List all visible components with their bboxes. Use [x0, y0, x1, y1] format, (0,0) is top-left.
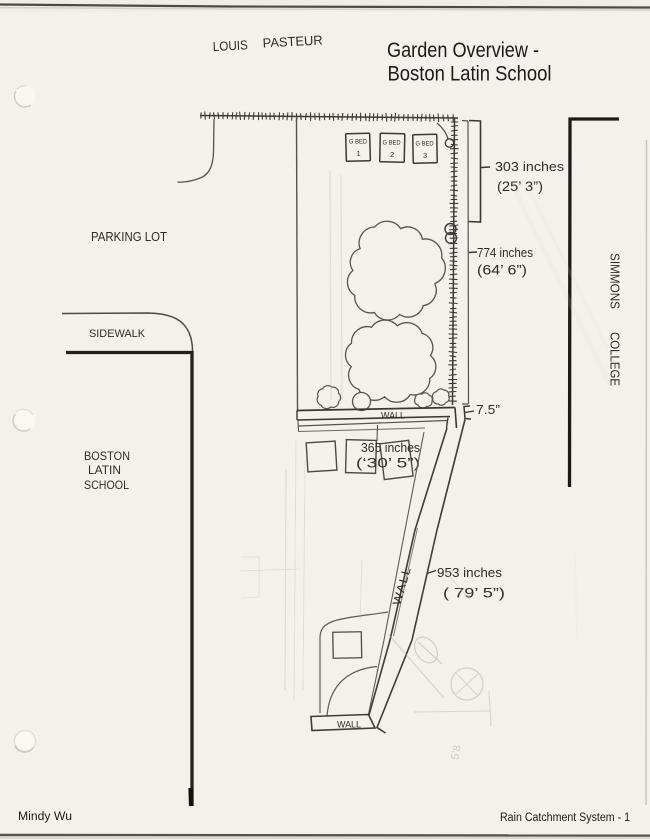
svg-text:SCHOOL: SCHOOL	[84, 478, 129, 492]
svg-text:G BED: G BED	[416, 142, 435, 148]
svg-text:Garden Overview -: Garden Overview -	[387, 39, 539, 62]
svg-text:774 inches: 774 inches	[477, 246, 533, 260]
svg-text:WALL: WALL	[337, 720, 361, 731]
svg-text:2: 2	[390, 150, 394, 159]
svg-text:Boston Latin School: Boston Latin School	[388, 63, 552, 86]
svg-text:303 inches: 303 inches	[495, 159, 565, 174]
svg-text:WALL: WALL	[381, 411, 405, 422]
svg-text:SIMMONS: SIMMONS	[608, 253, 622, 309]
svg-text:SIDEWALK: SIDEWALK	[89, 328, 146, 340]
svg-text:7.5”: 7.5”	[476, 402, 500, 417]
svg-text:( 79’ 5”): ( 79’ 5”)	[443, 586, 505, 601]
svg-text:BOSTON: BOSTON	[84, 449, 130, 463]
svg-text:Mindy Wu: Mindy Wu	[18, 811, 72, 823]
svg-text:LOUIS: LOUIS	[212, 37, 248, 54]
svg-text:PARKING LOT: PARKING LOT	[91, 229, 167, 244]
svg-text:5’8: 5’8	[449, 744, 463, 761]
svg-text:3: 3	[423, 151, 427, 160]
svg-text:1: 1	[357, 149, 361, 158]
svg-text:G BED: G BED	[349, 140, 368, 146]
svg-text:365 inches: 365 inches	[361, 440, 420, 455]
svg-text:(64’ 6”): (64’ 6”)	[477, 263, 527, 278]
svg-text:Rain Catchment System - 1: Rain Catchment System - 1	[500, 812, 630, 824]
svg-text:(25’ 3”): (25’ 3”)	[497, 178, 543, 194]
svg-text:LATIN: LATIN	[88, 463, 121, 477]
svg-text:PASTEUR: PASTEUR	[262, 32, 323, 50]
svg-text:G BED: G BED	[383, 141, 402, 147]
svg-text:(‘30’ 5”): (‘30’ 5”)	[356, 456, 420, 471]
svg-text:COLLEGE: COLLEGE	[608, 332, 622, 386]
